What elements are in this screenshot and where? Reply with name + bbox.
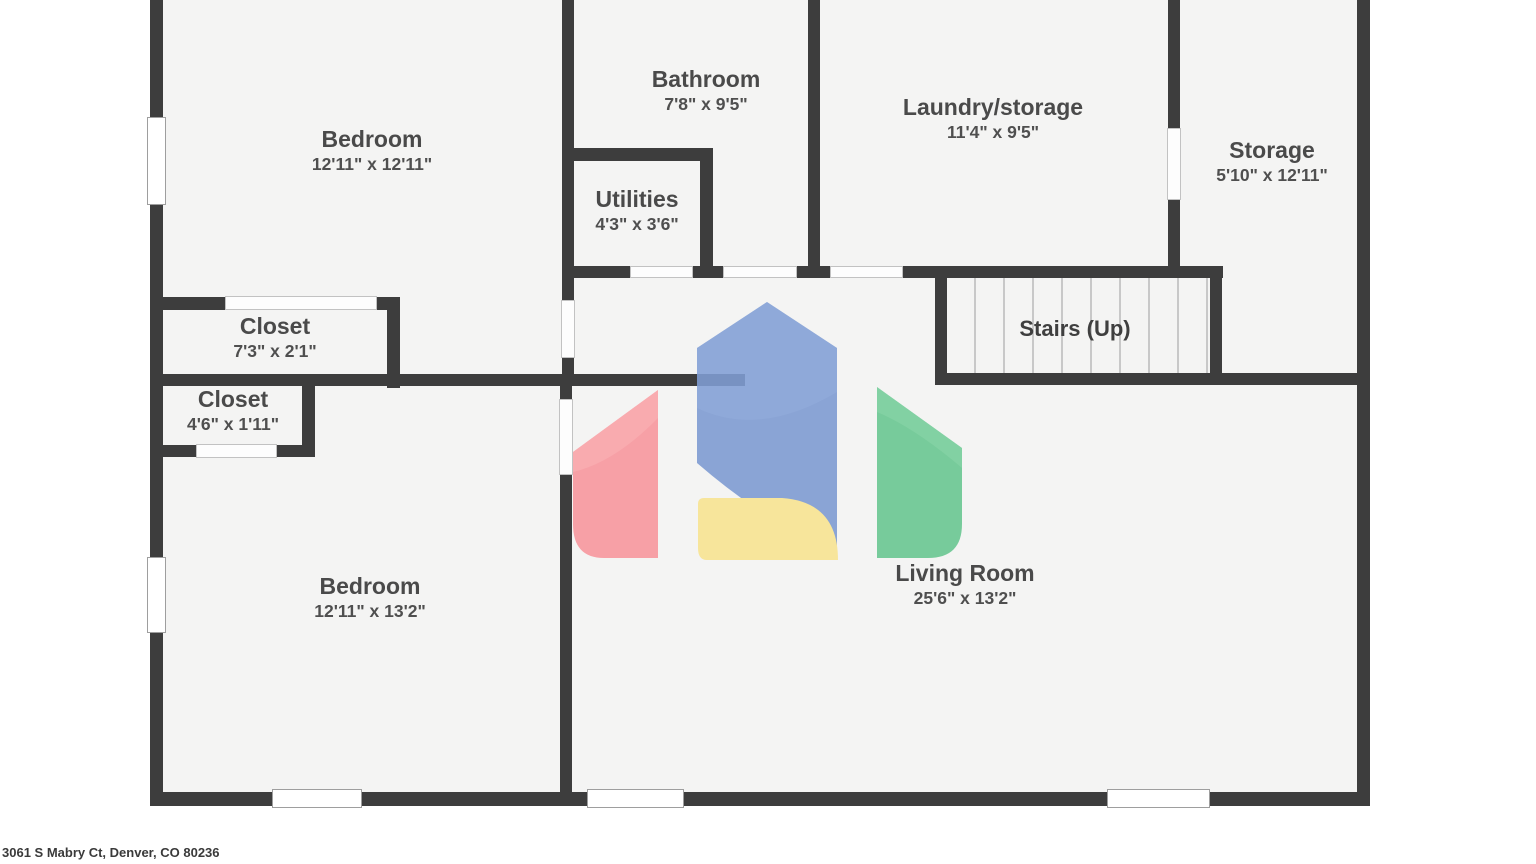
window-bottom-bedroom xyxy=(272,789,362,808)
wall-closet1-top-left xyxy=(162,297,225,310)
room-dims: 12'11" x 13'2" xyxy=(314,600,426,622)
room-label-bedroom-1: Bedroom 12'11" x 12'11" xyxy=(312,126,432,175)
window-left-lower xyxy=(147,557,166,633)
address-text: 3061 S Mabry Ct, Denver, CO 80236 xyxy=(2,845,220,860)
room-name: Bedroom xyxy=(312,126,432,153)
door-closet1 xyxy=(225,296,377,310)
window-bottom-living-left xyxy=(587,789,684,808)
stairs-label: Stairs (Up) xyxy=(1019,316,1130,342)
door-storage xyxy=(1167,128,1181,200)
room-label-closet-1: Closet 7'3" x 2'1" xyxy=(233,313,316,362)
wall-stairs-bottom xyxy=(935,373,1370,385)
room-dims: 11'4" x 9'5" xyxy=(903,121,1083,143)
floor-plan: Bedroom 12'11" x 12'11" Bathroom 7'8" x … xyxy=(0,0,1536,864)
wall-storage-left-lower xyxy=(1168,200,1180,268)
room-dims: 7'3" x 2'1" xyxy=(233,340,316,362)
room-label-closet-2: Closet 4'6" x 1'11" xyxy=(187,386,279,435)
door-bathroom xyxy=(723,266,797,278)
room-label-living-room: Living Room 25'6" x 13'2" xyxy=(895,560,1034,609)
wall-hall-bottom-2 xyxy=(693,266,723,278)
door-closet2 xyxy=(196,444,277,458)
door-utilities xyxy=(630,266,693,278)
window-left-upper xyxy=(147,117,166,205)
room-name: Closet xyxy=(233,313,316,340)
room-label-storage: Storage 5'10" x 12'11" xyxy=(1216,137,1328,186)
watermark-house-logo xyxy=(570,300,965,562)
room-name: Bathroom xyxy=(652,66,761,93)
wall-storage-left-upper xyxy=(1168,0,1180,128)
room-dims: 4'3" x 3'6" xyxy=(595,213,678,235)
window-bottom-living-right xyxy=(1107,789,1210,808)
room-name: Bedroom xyxy=(314,573,426,600)
room-label-bathroom: Bathroom 7'8" x 9'5" xyxy=(652,66,761,115)
wall-utilities-top xyxy=(562,148,713,161)
room-dims: 7'8" x 9'5" xyxy=(652,93,761,115)
wall-closet-row-bottom xyxy=(150,374,574,386)
room-dims: 25'6" x 13'2" xyxy=(895,587,1034,609)
room-name: Utilities xyxy=(595,186,678,213)
wall-closet2-bottom-left xyxy=(162,445,196,457)
room-name: Laundry/storage xyxy=(903,94,1083,121)
wall-closet2-bottom-right xyxy=(277,445,315,457)
wall-hall-bottom-1 xyxy=(562,266,630,278)
wall-bathroom-right xyxy=(808,0,820,278)
wall-stairs-right xyxy=(1210,278,1222,385)
room-dims: 12'11" x 12'11" xyxy=(312,153,432,175)
wall-stairs-top xyxy=(903,266,1223,278)
room-dims: 5'10" x 12'11" xyxy=(1216,164,1328,186)
room-dims: 4'6" x 1'11" xyxy=(187,413,279,435)
wall-outer-right xyxy=(1357,0,1370,806)
room-name: Storage xyxy=(1216,137,1328,164)
room-label-bedroom-2: Bedroom 12'11" x 13'2" xyxy=(314,573,426,622)
door-laundry xyxy=(830,266,903,278)
wall-utilities-right xyxy=(700,148,713,278)
wall-hall-left-upper xyxy=(562,278,574,300)
room-label-laundry: Laundry/storage 11'4" x 9'5" xyxy=(903,94,1083,143)
logo-blue-highlight xyxy=(697,302,837,420)
wall-bathroom-left xyxy=(562,0,574,278)
room-name: Living Room xyxy=(895,560,1034,587)
room-label-utilities: Utilities 4'3" x 3'6" xyxy=(595,186,678,235)
room-name: Closet xyxy=(187,386,279,413)
